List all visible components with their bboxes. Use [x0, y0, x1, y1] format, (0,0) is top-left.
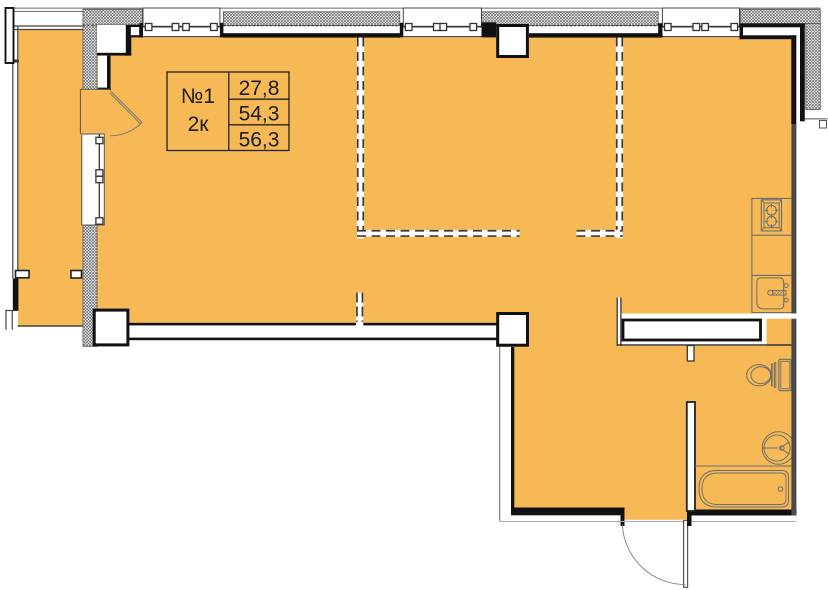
svg-text:2к: 2к — [188, 113, 210, 136]
svg-text:27,8: 27,8 — [239, 77, 280, 100]
svg-text:54,3: 54,3 — [239, 103, 280, 126]
svg-text:№1: №1 — [181, 85, 215, 108]
svg-text:56,3: 56,3 — [239, 129, 280, 152]
